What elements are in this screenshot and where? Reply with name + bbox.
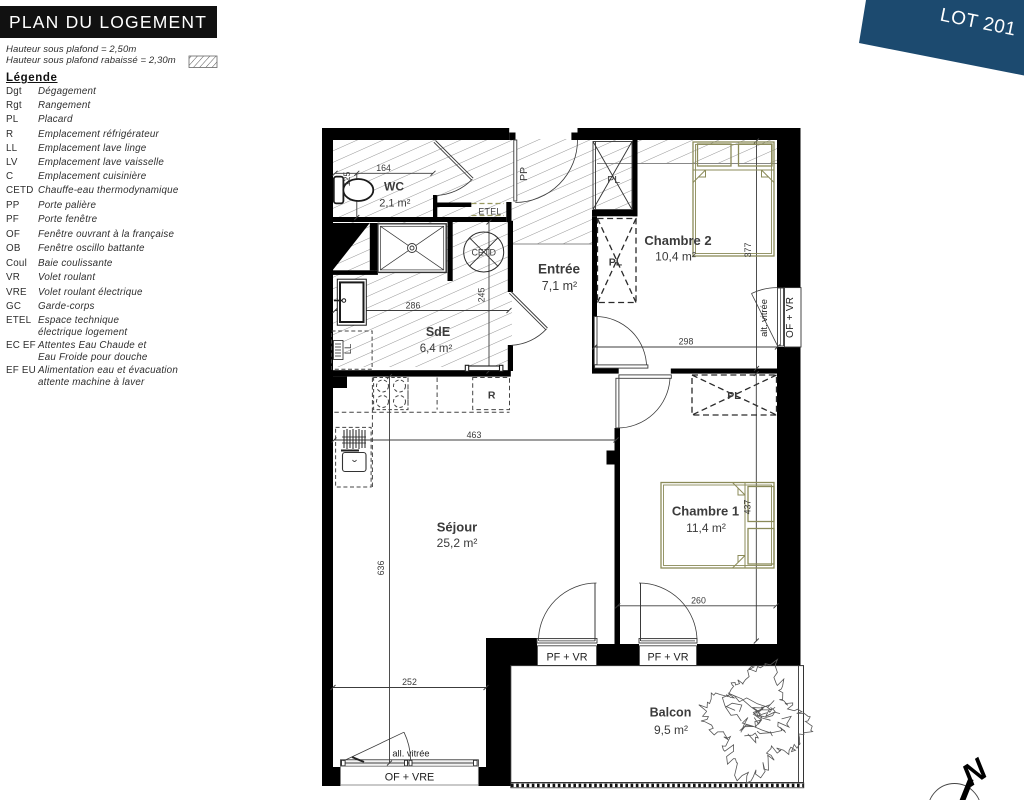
svg-text:OF + VRE: OF + VRE	[385, 772, 435, 784]
svg-text:125: 125	[342, 172, 352, 187]
svg-text:R: R	[488, 390, 496, 402]
svg-text:636: 636	[376, 561, 386, 576]
svg-text:Entrée: Entrée	[538, 262, 581, 277]
svg-text:Séjour: Séjour	[437, 520, 477, 535]
svg-text:11,4 m²: 11,4 m²	[686, 521, 726, 535]
svg-text:463: 463	[467, 430, 482, 440]
svg-text:377: 377	[743, 243, 753, 258]
svg-text:Chambre 1: Chambre 1	[672, 504, 739, 519]
svg-text:Balcon: Balcon	[650, 706, 692, 720]
svg-text:PF + VR: PF + VR	[647, 652, 688, 664]
svg-text:PF + VR: PF + VR	[546, 652, 587, 664]
svg-text:2,1 m²: 2,1 m²	[379, 198, 411, 210]
svg-text:10,4 m²: 10,4 m²	[655, 250, 696, 264]
svg-text:PL: PL	[727, 390, 741, 402]
svg-text:252: 252	[402, 677, 417, 687]
svg-text:WC: WC	[384, 180, 404, 194]
svg-text:298: 298	[679, 337, 694, 347]
svg-text:N: N	[955, 751, 993, 793]
svg-text:alt. vitrée: alt. vitrée	[759, 299, 769, 337]
svg-text:PP: PP	[518, 167, 530, 181]
svg-text:437: 437	[743, 500, 753, 515]
svg-text:164: 164	[376, 163, 391, 173]
svg-text:Chambre 2: Chambre 2	[644, 233, 711, 248]
svg-text:LL: LL	[343, 344, 354, 355]
svg-text:245: 245	[477, 288, 487, 303]
svg-text:7,1 m²: 7,1 m²	[542, 279, 577, 293]
svg-text:260: 260	[691, 596, 706, 606]
svg-text:25,2 m²: 25,2 m²	[437, 536, 478, 550]
svg-text:9,5 m²: 9,5 m²	[654, 723, 688, 737]
svg-text:PL: PL	[607, 174, 620, 186]
svg-text:ETEL: ETEL	[478, 207, 501, 217]
svg-text:OF + VR: OF + VR	[785, 297, 796, 338]
svg-text:SdE: SdE	[426, 325, 450, 339]
svg-text:PL: PL	[609, 257, 623, 269]
svg-text:all. vitrée: all. vitrée	[392, 749, 429, 759]
svg-text:6,4 m²: 6,4 m²	[420, 343, 453, 355]
svg-text:286: 286	[406, 301, 421, 311]
svg-text:CETD: CETD	[471, 247, 496, 257]
